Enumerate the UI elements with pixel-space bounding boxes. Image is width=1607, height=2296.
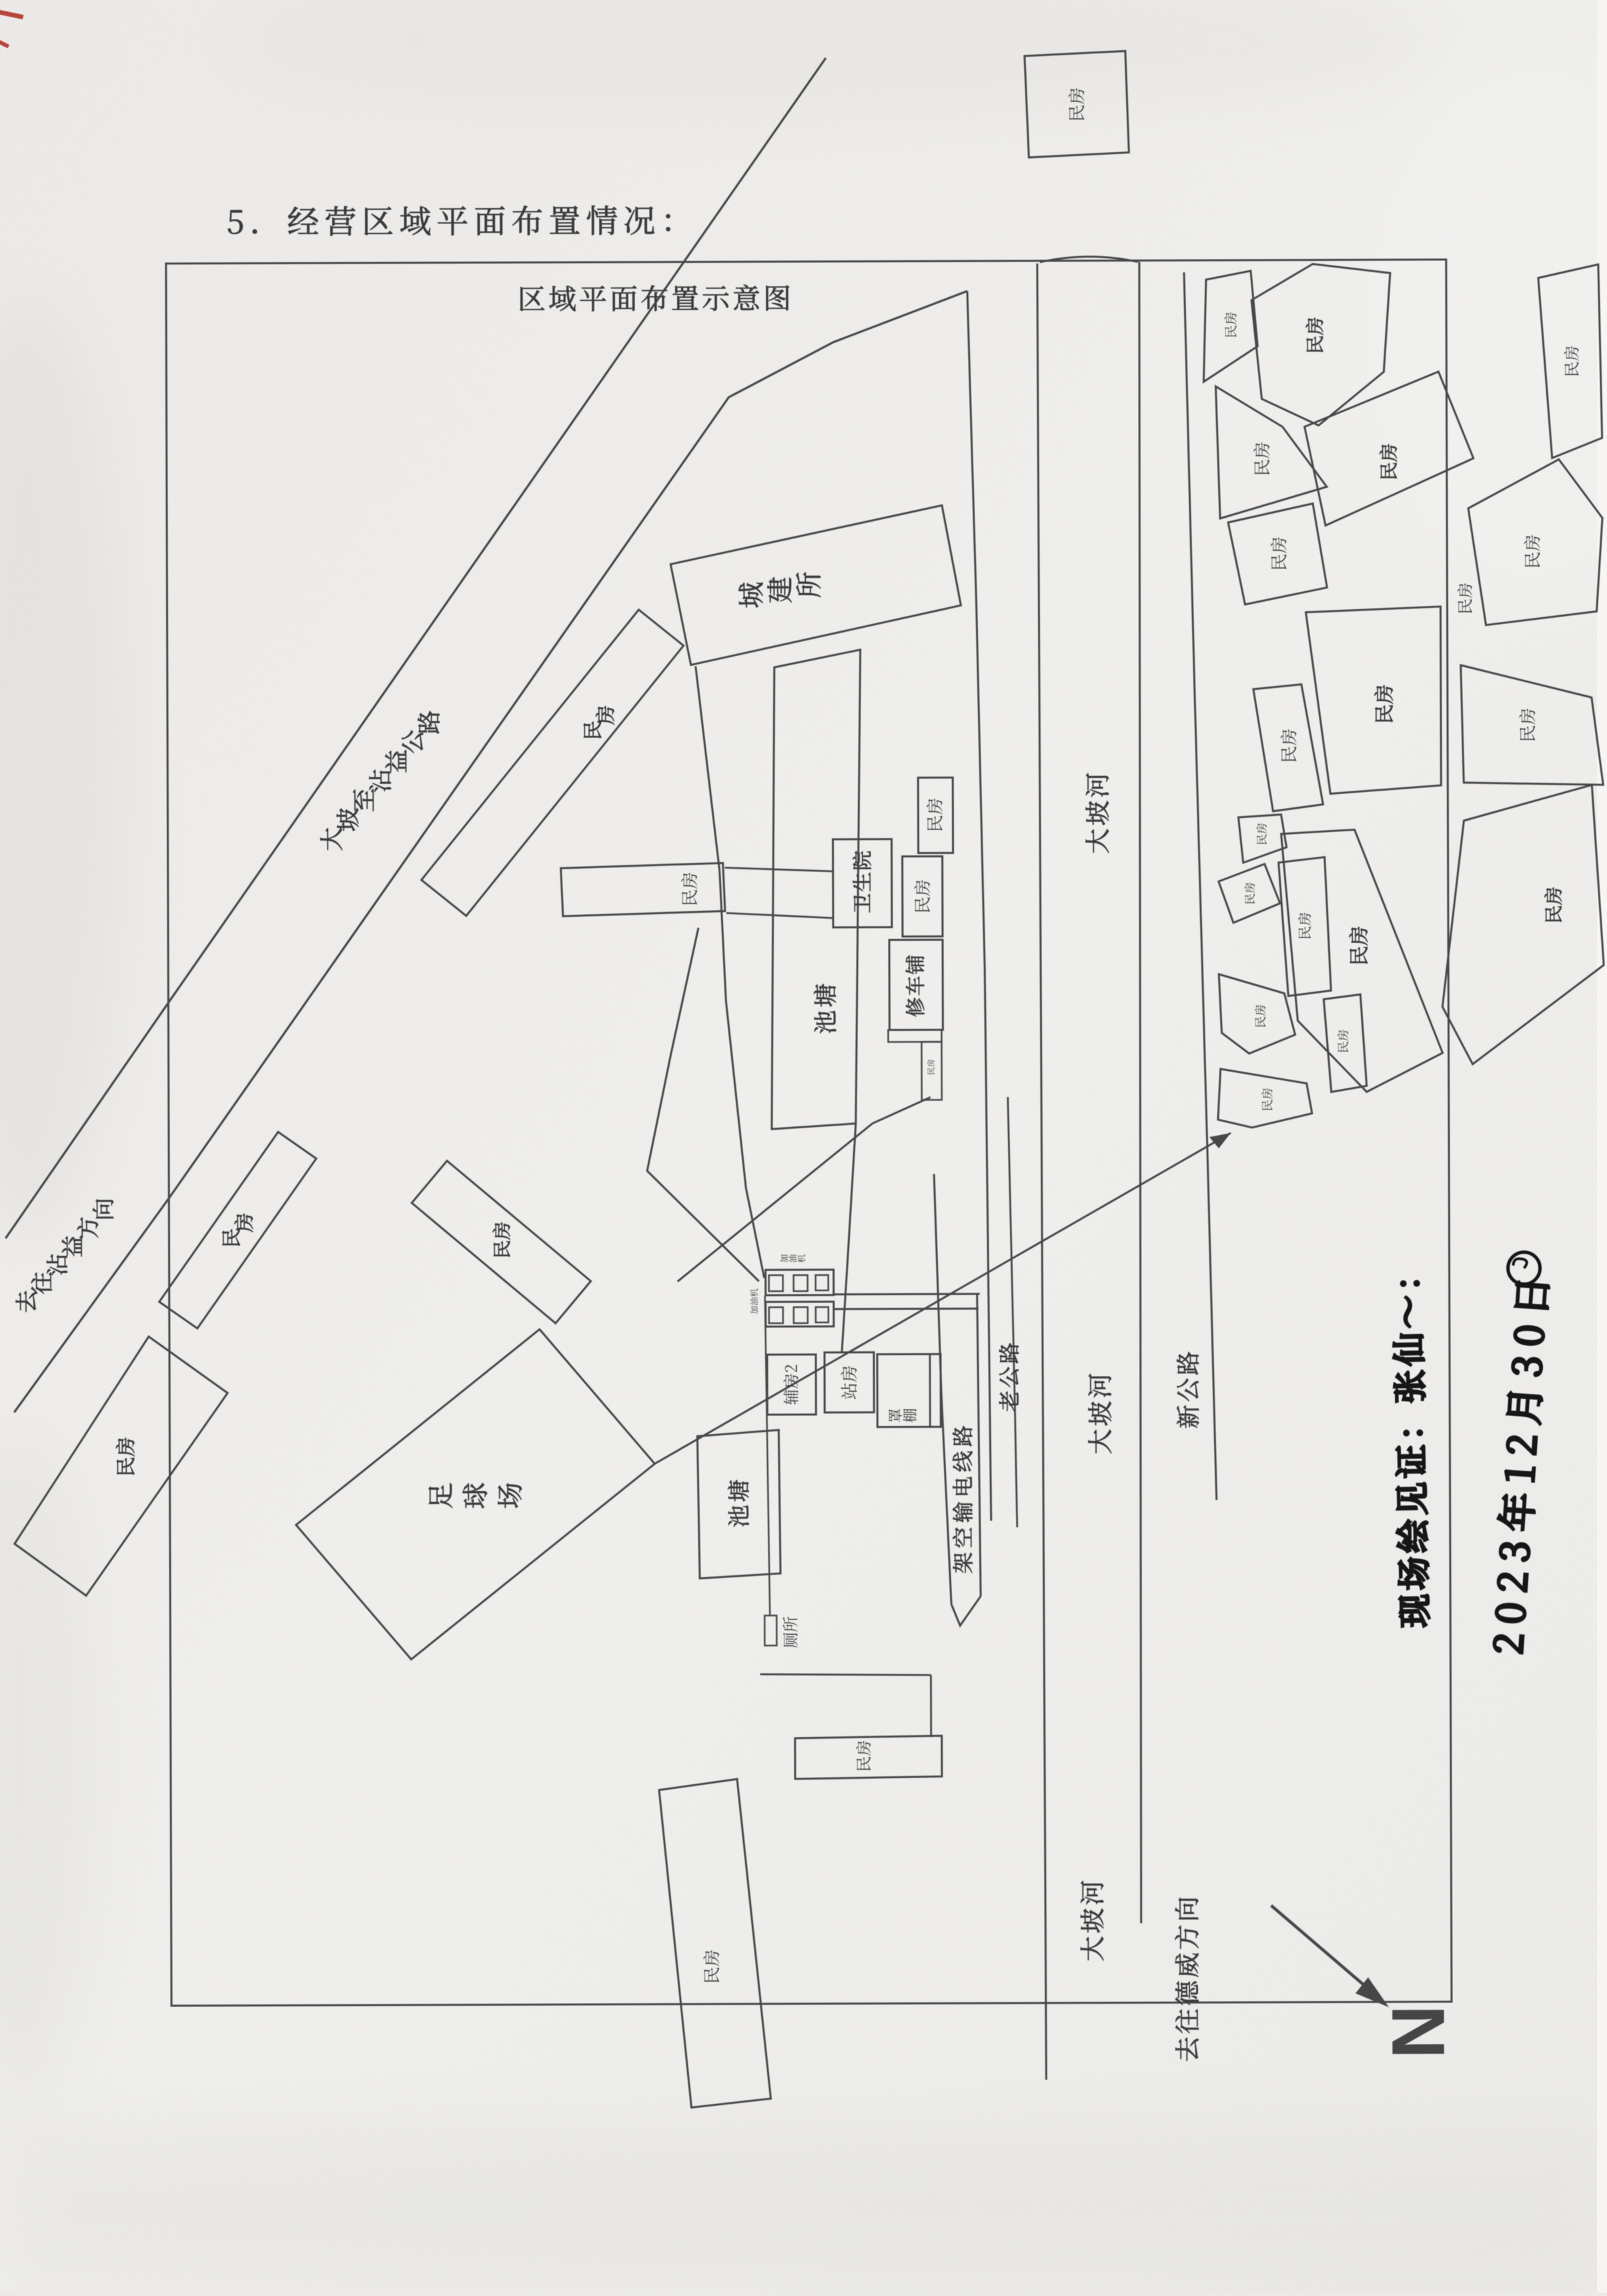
svg-text:N: N (1377, 2004, 1460, 2058)
